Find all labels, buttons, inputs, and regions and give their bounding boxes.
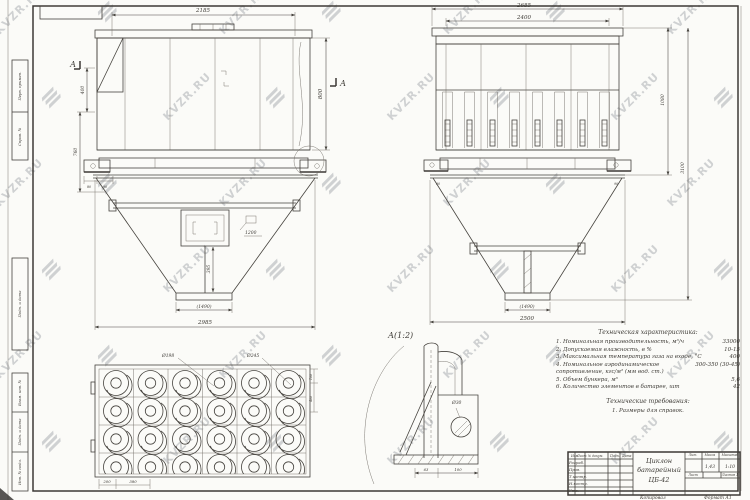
- cyclone-element: [276, 455, 301, 480]
- cyclone-element: [111, 462, 121, 472]
- cyclone-element: [111, 378, 121, 388]
- dim-side-right-total: 3100: [680, 162, 686, 174]
- dim-plan-bottom-b: 380: [129, 479, 137, 484]
- hopper-access-door: [181, 210, 229, 246]
- dim-side-foot-right: 90: [614, 182, 618, 186]
- notes-title: Техническая характеристика:: [556, 329, 740, 336]
- cyclone-element: [180, 462, 190, 472]
- tb-footer-format: Формат А1: [704, 495, 732, 500]
- dim-front-door: 1200: [245, 230, 257, 236]
- notes-item: 3. Максимальная температура газа на вход…: [556, 354, 740, 362]
- title-block: Изм. Лист № докум. Подп. Дата Разраб. Пр…: [568, 452, 740, 500]
- cyclone-element: [180, 434, 190, 444]
- dim-side-flange: (1490): [520, 303, 535, 310]
- hopper-strut: [524, 251, 531, 293]
- stamp-perv-primen: Перв. примен.: [17, 71, 22, 101]
- dim-front-drop: 395: [206, 265, 212, 274]
- dim-side-foot-left: 90: [436, 182, 440, 186]
- cyclone-element: [207, 455, 232, 480]
- hopper-sides: [433, 178, 622, 293]
- top-left-stamp-box: [40, 6, 102, 19]
- drawing-linework: Перв. примен. Справ. № Подп. и дата Взам…: [0, 0, 750, 500]
- side-section-view: 2685 2400 1080 3100 (1490) 2500 90 90: [424, 3, 692, 325]
- dim-front-foot-b: 90: [103, 185, 107, 189]
- dim-front-flange: (1490): [197, 303, 212, 310]
- tb-lit-label: Лит.: [688, 453, 698, 457]
- dim-plan-inner-dia: Ø198: [161, 352, 174, 359]
- dim-detail-hole-dia: Ø30: [451, 399, 462, 406]
- technical-notes: Техническая характеристика: 1. Номинальн…: [556, 329, 740, 414]
- stamp-inv-podl: Инв. № подл.: [17, 459, 22, 486]
- drawing-sheet: KVZR.RUKVZR.RUKVZR.RUKVZR.RUKVZR.RUKVZR.…: [0, 0, 750, 500]
- cyclone-element: [145, 434, 155, 444]
- plan-view: Ø198 Ø245 200 380 100 400: [91, 352, 318, 489]
- stamp-sprav: Справ. №: [17, 127, 22, 146]
- cyclone-element: [111, 406, 121, 416]
- tb-col-podp: Подп.: [609, 454, 620, 458]
- tb-footer-copy: Копировал: [639, 495, 666, 500]
- dim-side-top-inner: 2400: [516, 15, 531, 21]
- detail-label: А(1:2): [387, 331, 413, 340]
- dim-plan-outer-dia: Ø245: [246, 352, 259, 359]
- tb-sheet-label: Лист: [687, 473, 698, 477]
- dim-detail-b: 100: [454, 467, 462, 472]
- tb-col-data: Дата: [621, 454, 632, 458]
- cyclone-element: [214, 462, 224, 472]
- front-view: 2185 800 400 760 80 90 1200 395 (1490) 2…: [69, 8, 346, 330]
- tb-mass-value: 1,43: [705, 464, 715, 470]
- tb-row-utv: Утв.: [569, 488, 579, 493]
- outlet-flange: [176, 293, 232, 300]
- cyclone-element: [283, 462, 293, 472]
- notes-item: 2. Допускаемая влажность, в %10-15: [556, 347, 740, 355]
- tb-sheets-label: Листов 1: [721, 473, 738, 477]
- cyclone-element: [145, 378, 155, 388]
- dim-plan-right-a: 100: [309, 374, 313, 380]
- cyclone-element: [214, 434, 224, 444]
- cyclone-element: [145, 406, 155, 416]
- margin-stamps: Перв. примен. Справ. № Подп. и дата Взам…: [12, 60, 28, 491]
- cyclone-element: [173, 455, 198, 480]
- cyclone-element: [214, 378, 224, 388]
- dim-plan-right-b: 400: [309, 396, 313, 403]
- stamp-podp-data-2: Подп. и дата: [17, 418, 22, 447]
- dim-side-right-upper: 1080: [660, 94, 666, 106]
- cyclone-element: [249, 462, 259, 472]
- requirements-item: 1. Размеры для справок.: [556, 408, 740, 414]
- cyclone-element: [249, 378, 259, 388]
- support-foot-right: [300, 160, 326, 172]
- tb-mass-label: Масса: [704, 453, 716, 457]
- dim-side-top-outer: 2685: [516, 3, 531, 9]
- cyclone-element: [214, 406, 224, 416]
- cyclone-element: [249, 406, 259, 416]
- cyclone-element: [242, 455, 267, 480]
- stamp-vzam-inv: Взам. инв. №: [17, 380, 22, 407]
- dim-side-bottom: 2500: [519, 316, 534, 322]
- notes-item: 6. Количество элементов в батарее, шт42: [556, 384, 740, 392]
- tb-row-prov: Пров.: [568, 467, 580, 472]
- dim-plan-bottom-a: 200: [102, 479, 111, 484]
- support-foot-left: [84, 160, 110, 172]
- requirements-title: Технические требования:: [556, 398, 740, 405]
- notes-item: 5. Объем бункера, м³5,6: [556, 377, 740, 385]
- tb-doc-name-1: Циклон: [646, 457, 672, 465]
- outlet-flange: [505, 293, 550, 300]
- cyclone-element: [145, 462, 155, 472]
- section-marker-a-right: А: [339, 79, 346, 88]
- detail-gusset: [400, 382, 436, 455]
- cyclone-element: [138, 455, 163, 480]
- section-marker-a-left: А: [69, 60, 76, 69]
- tb-doc-name-3: ЦБ-42: [649, 476, 670, 484]
- cyclone-element: [283, 434, 293, 444]
- cyclone-element: [180, 378, 190, 388]
- cyclone-element: [104, 455, 129, 480]
- tb-row-nkontr: Н.контр.: [568, 481, 588, 486]
- dim-front-right: 800: [318, 88, 324, 99]
- cyclone-element: [111, 434, 121, 444]
- cyclone-element: [283, 406, 293, 416]
- tb-col-list: Лист: [576, 454, 587, 458]
- cyclone-element: [180, 406, 190, 416]
- tb-doc-name-2: батарейный: [637, 466, 681, 474]
- dim-front-bottom: 2985: [197, 320, 212, 326]
- tb-row-tkontr: Т.контр.: [569, 474, 587, 479]
- detail-view-a: А(1:2) Ø30 63 100: [365, 331, 478, 484]
- dim-detail-a: 63: [424, 467, 429, 472]
- notes-item: 4. Номинальное аэродинамическое сопротив…: [556, 362, 740, 377]
- dim-front-left-upper: 400: [80, 86, 86, 96]
- notes-list: 1. Номинальная производительность, м³/ч3…: [556, 339, 740, 392]
- cyclone-element: [249, 434, 259, 444]
- detail-base-plate: [394, 455, 478, 464]
- dim-front-left-lower: 760: [73, 148, 79, 157]
- stamp-podp-data-1: Подп. и дата: [17, 290, 22, 319]
- notes-item: 1. Номинальная производительность, м³/ч3…: [556, 339, 740, 347]
- tb-scale-value: 1:10: [725, 464, 735, 470]
- tb-scale-label: Масштаб: [721, 453, 739, 457]
- tb-col-docnum: № докум.: [587, 454, 603, 458]
- hopper-sides: [96, 178, 315, 293]
- dim-front-top: 2185: [195, 8, 210, 14]
- dim-front-foot-a: 80: [87, 185, 91, 189]
- tb-row-razrab: Разраб.: [568, 460, 584, 465]
